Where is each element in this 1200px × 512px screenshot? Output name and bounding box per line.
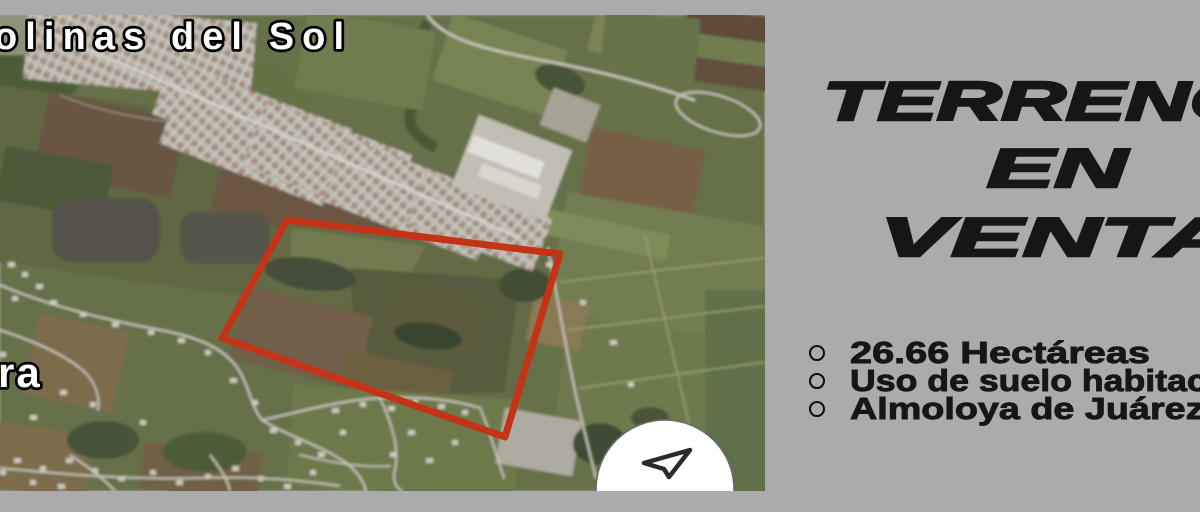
svg-text:Almoloya de Juárez,: Almoloya de Juárez, [850,391,1200,426]
svg-text:TERRENO: TERRENO [823,70,1200,132]
svg-text:VENTA: VENTA [880,206,1200,268]
svg-text:ra: ra [0,349,42,396]
svg-text:EN: EN [987,137,1129,199]
svg-text:olinas del Sol: olinas del Sol [0,16,344,58]
